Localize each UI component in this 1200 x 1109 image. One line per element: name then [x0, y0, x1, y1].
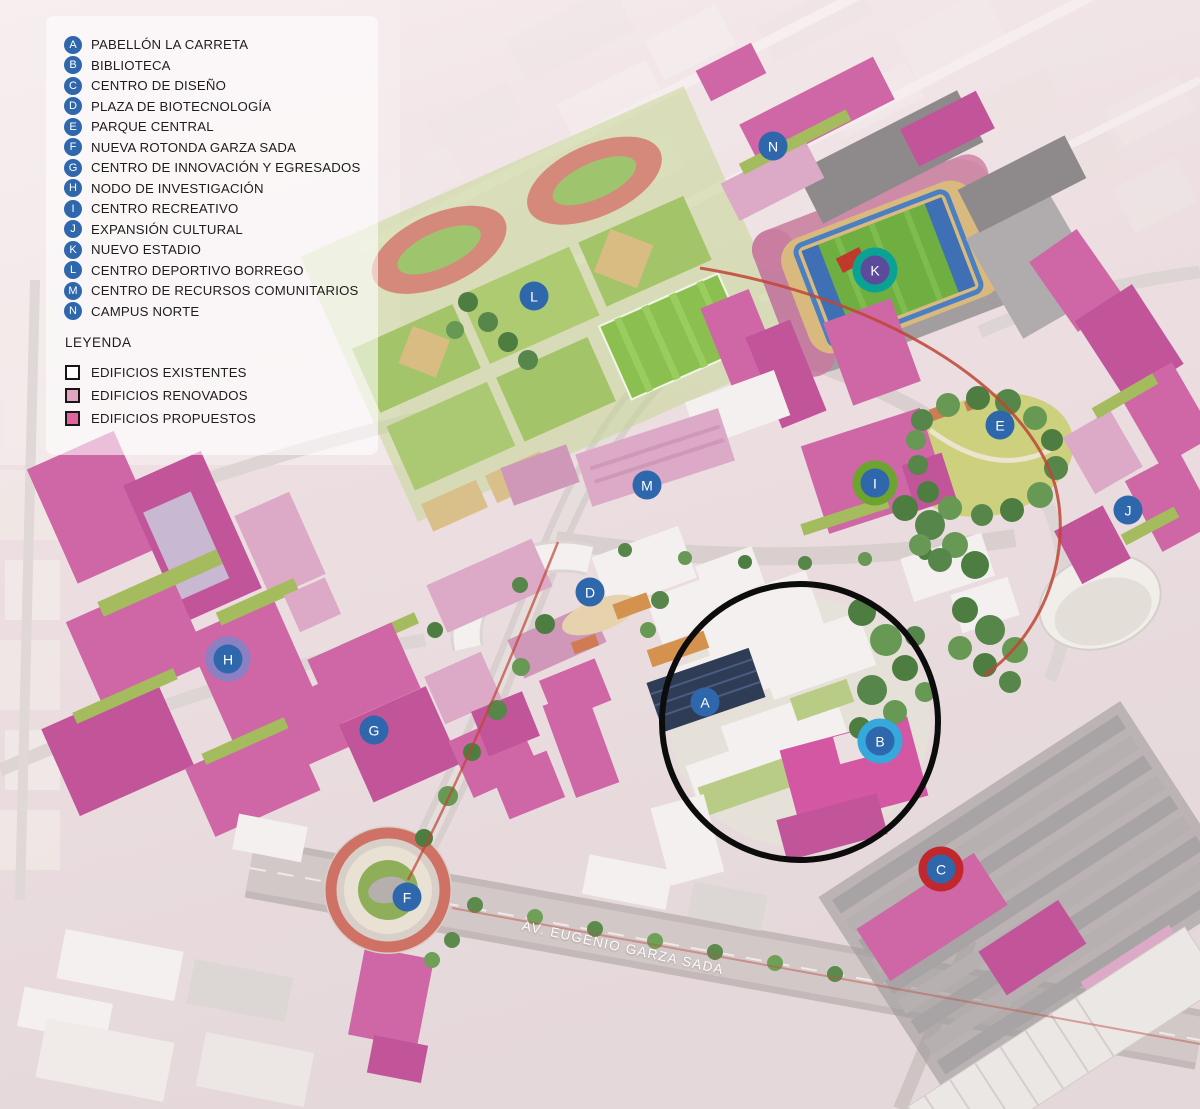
- legend-item-badge: F: [64, 138, 82, 156]
- legend-category-swatch: [65, 411, 80, 426]
- legend-item-g: GCENTRO DE INNOVACIÓN Y EGRESADOS: [64, 159, 366, 176]
- legend-category-label: EDIFICIOS EXISTENTES: [91, 365, 247, 380]
- legend-item-badge: B: [64, 56, 82, 74]
- map-marker-c[interactable]: C: [927, 855, 956, 884]
- legend-item-label: EXPANSIÓN CULTURAL: [91, 222, 243, 237]
- legend-category: EDIFICIOS RENOVADOS: [65, 387, 366, 404]
- legend-item-f: FNUEVA ROTONDA GARZA SADA: [64, 139, 366, 156]
- legend-item-b: BBIBLIOTECA: [64, 57, 366, 74]
- legend-item-m: MCENTRO DE RECURSOS COMUNITARIOS: [64, 282, 366, 299]
- legend-item-badge: M: [64, 282, 82, 300]
- map-marker-i[interactable]: I: [861, 469, 890, 498]
- map-marker-g[interactable]: G: [360, 716, 389, 745]
- legend-item-label: NUEVO ESTADIO: [91, 242, 201, 257]
- legend-item-i: ICENTRO RECREATIVO: [64, 200, 366, 217]
- legend-item-d: DPLAZA DE BIOTECNOLOGÍA: [64, 98, 366, 115]
- legend-item-a: APABELLÓN LA CARRETA: [64, 36, 366, 53]
- legend-item-l: LCENTRO DEPORTIVO BORREGO: [64, 262, 366, 279]
- legend-item-label: NUEVA ROTONDA GARZA SADA: [91, 140, 296, 155]
- legend-category-label: EDIFICIOS RENOVADOS: [91, 388, 248, 403]
- map-marker-a[interactable]: A: [691, 688, 720, 717]
- legend-category: EDIFICIOS EXISTENTES: [65, 364, 366, 381]
- map-marker-b[interactable]: B: [866, 727, 895, 756]
- legend-item-badge: A: [64, 36, 82, 54]
- legend-item-badge: H: [64, 179, 82, 197]
- legend-item-label: NODO DE INVESTIGACIÓN: [91, 181, 264, 196]
- legend-item-label: CENTRO DE DISEÑO: [91, 78, 226, 93]
- legend-item-n: NCAMPUS NORTE: [64, 303, 366, 320]
- map-marker-n[interactable]: N: [759, 132, 788, 161]
- map-marker-d[interactable]: D: [576, 578, 605, 607]
- legend-item-badge: C: [64, 77, 82, 95]
- map-marker-j[interactable]: J: [1114, 496, 1143, 525]
- legend-item-j: JEXPANSIÓN CULTURAL: [64, 221, 366, 238]
- map-marker-l[interactable]: L: [520, 282, 549, 311]
- legend-item-label: BIBLIOTECA: [91, 58, 171, 73]
- legend-category-swatch: [65, 388, 80, 403]
- legend-item-label: PLAZA DE BIOTECNOLOGÍA: [91, 99, 271, 114]
- legend-item-label: CAMPUS NORTE: [91, 304, 199, 319]
- leyenda-title: LEYENDA: [65, 335, 366, 350]
- legend-item-badge: E: [64, 118, 82, 136]
- legend-category-label: EDIFICIOS PROPUESTOS: [91, 411, 256, 426]
- map-marker-k[interactable]: K: [861, 256, 890, 285]
- legend-item-h: HNODO DE INVESTIGACIÓN: [64, 180, 366, 197]
- legend-items: APABELLÓN LA CARRETABBIBLIOTECACCENTRO D…: [64, 36, 366, 320]
- legend-item-c: CCENTRO DE DISEÑO: [64, 77, 366, 94]
- legend-item-label: CENTRO DEPORTIVO BORREGO: [91, 263, 304, 278]
- legend-item-k: KNUEVO ESTADIO: [64, 241, 366, 258]
- legend-category-swatch: [65, 365, 80, 380]
- legend-item-label: PABELLÓN LA CARRETA: [91, 37, 248, 52]
- map-marker-f[interactable]: F: [393, 883, 422, 912]
- legend-item-label: CENTRO DE INNOVACIÓN Y EGRESADOS: [91, 160, 360, 175]
- legend-item-badge: D: [64, 97, 82, 115]
- map-marker-m[interactable]: M: [633, 471, 662, 500]
- map-marker-e[interactable]: E: [986, 411, 1015, 440]
- legend-item-badge: K: [64, 241, 82, 259]
- legend-item-badge: N: [64, 302, 82, 320]
- legend-item-label: PARQUE CENTRAL: [91, 119, 214, 134]
- legend-category: EDIFICIOS PROPUESTOS: [65, 410, 366, 427]
- legend-item-badge: I: [64, 200, 82, 218]
- legend-item-badge: G: [64, 159, 82, 177]
- legend-categories: EDIFICIOS EXISTENTESEDIFICIOS RENOVADOSE…: [64, 364, 366, 427]
- map-marker-h[interactable]: H: [214, 645, 243, 674]
- legend-item-badge: J: [64, 220, 82, 238]
- legend-item-badge: L: [64, 261, 82, 279]
- legend-item-label: CENTRO RECREATIVO: [91, 201, 239, 216]
- legend-panel: APABELLÓN LA CARRETABBIBLIOTECACCENTRO D…: [46, 16, 378, 455]
- roundabout: [324, 826, 452, 954]
- legend-item-e: EPARQUE CENTRAL: [64, 118, 366, 135]
- legend-item-label: CENTRO DE RECURSOS COMUNITARIOS: [91, 283, 359, 298]
